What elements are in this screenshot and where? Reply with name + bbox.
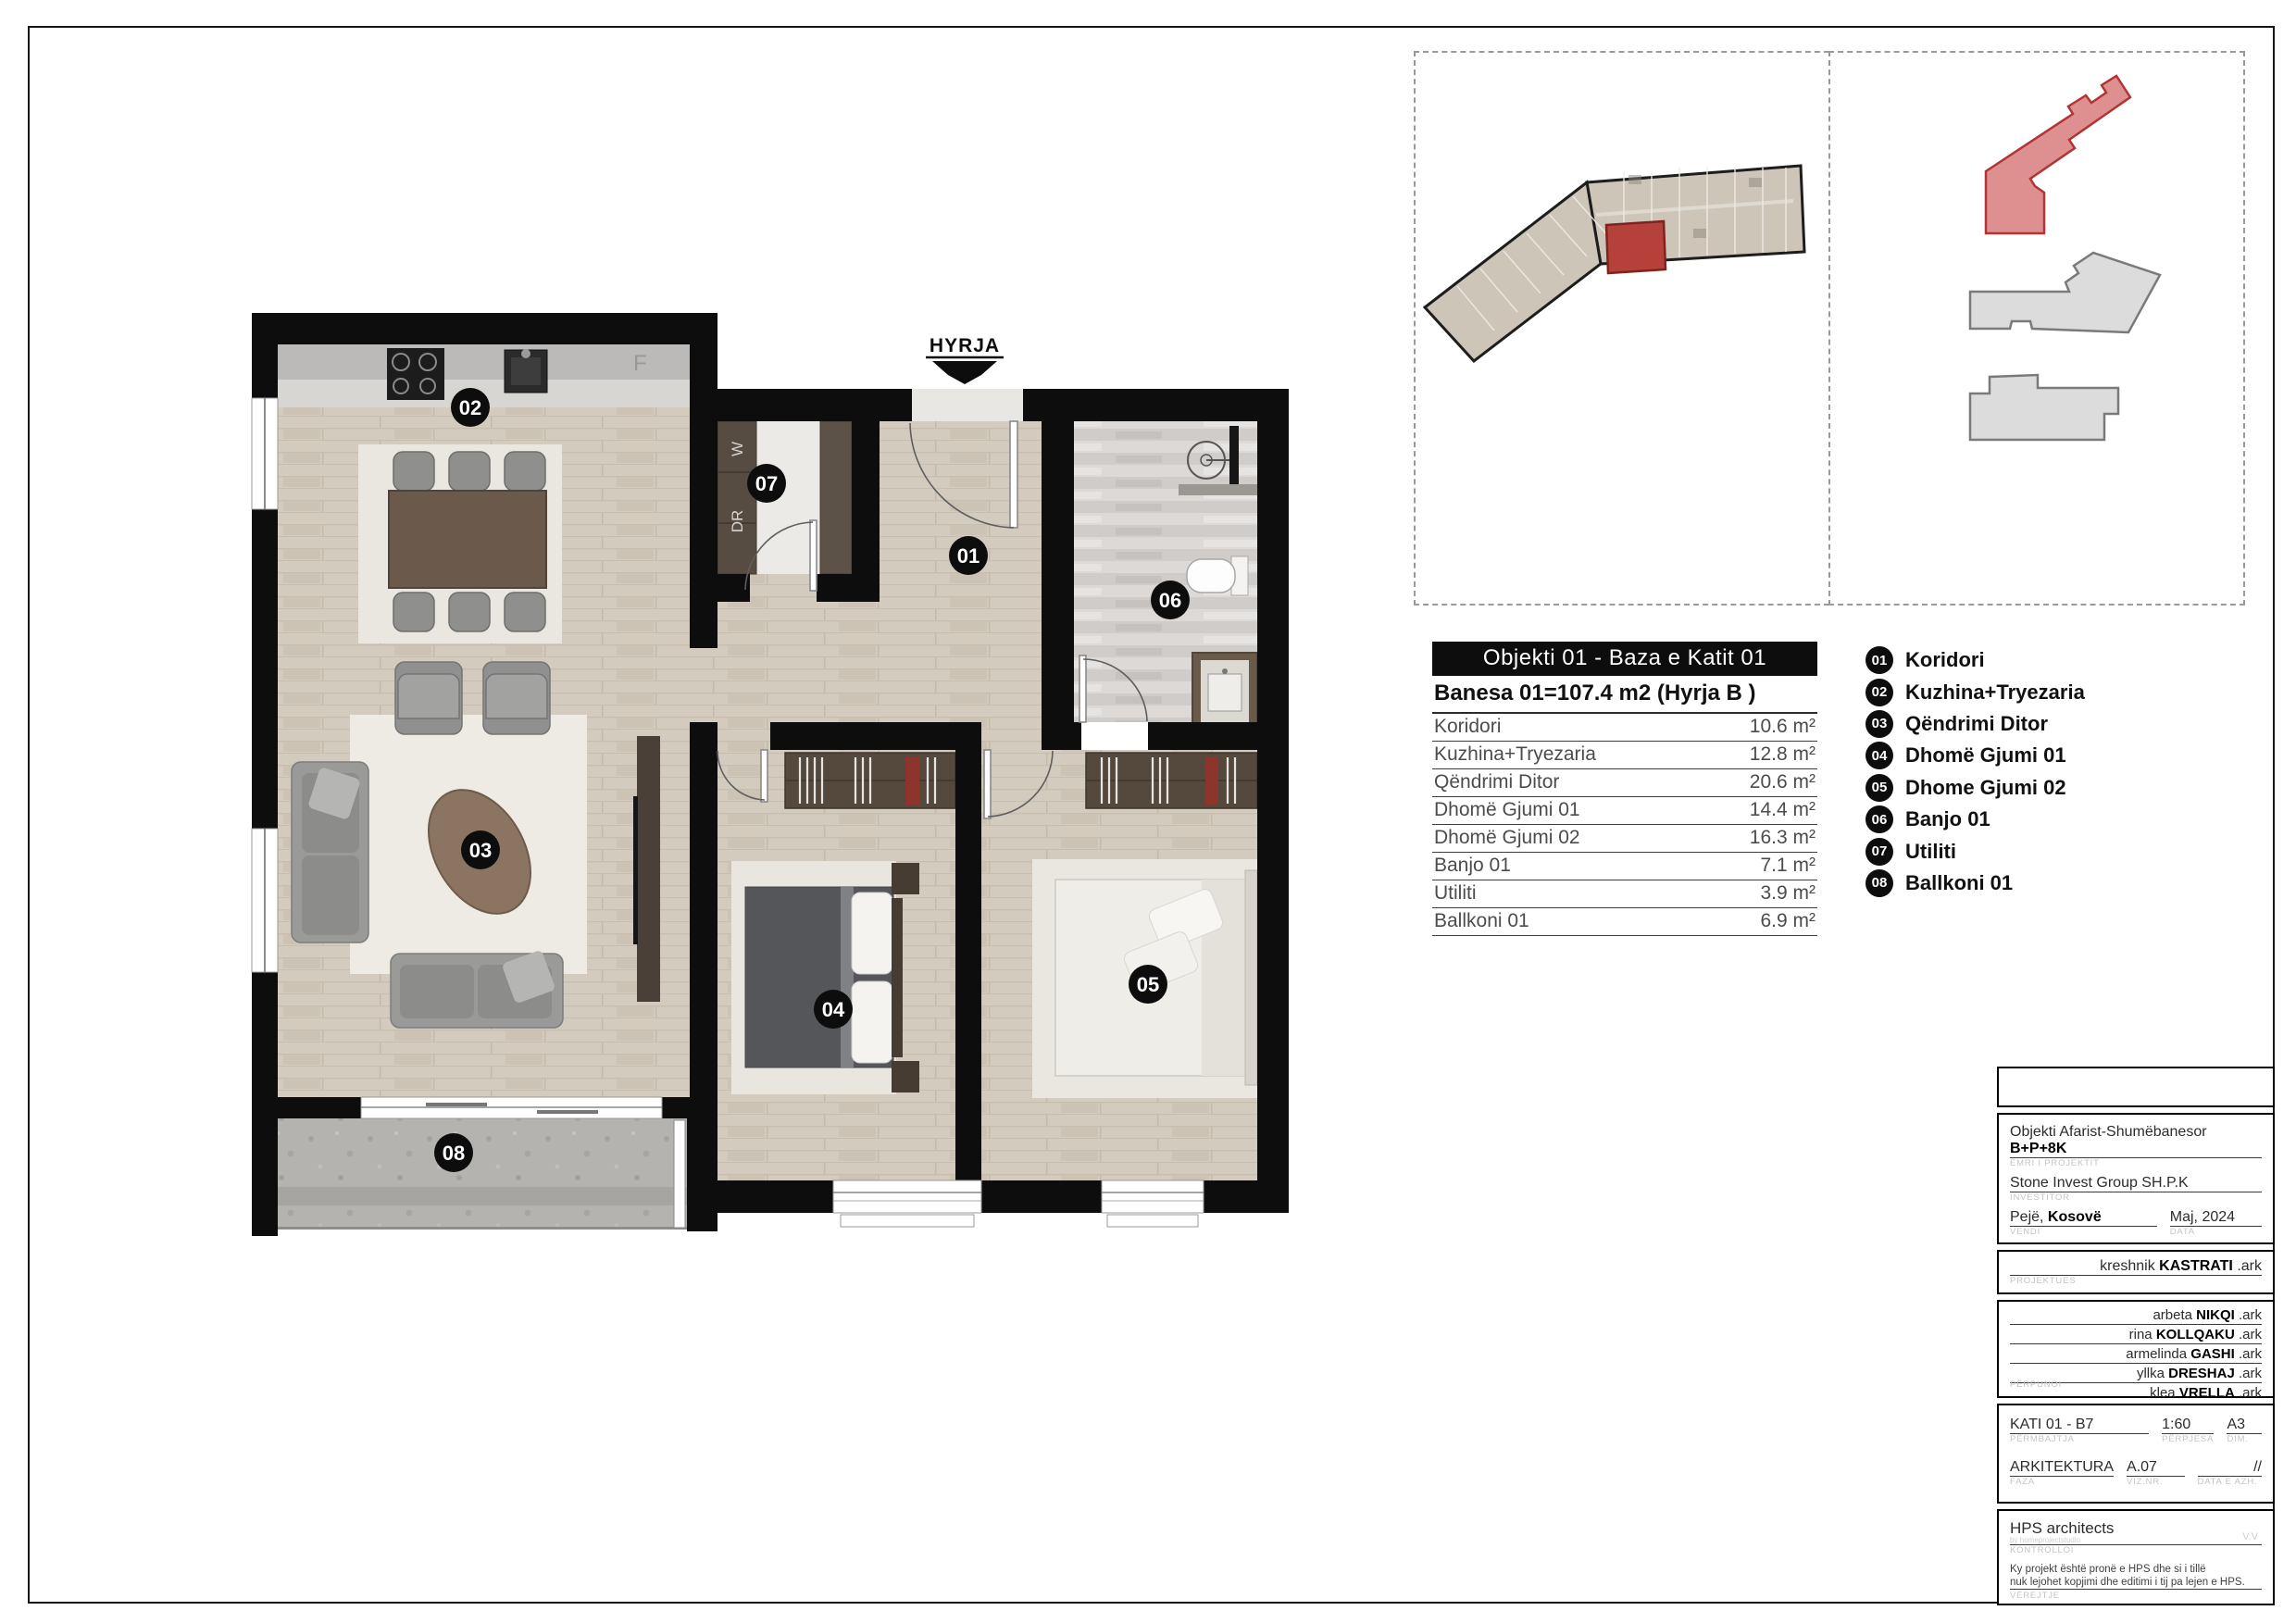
svg-text:04: 04	[822, 998, 845, 1021]
investor-field: Stone Invest Group SH.P.K INVESTITOR	[2010, 1175, 2262, 1203]
team-member: arbeta NIKQI .ark	[2010, 1307, 2262, 1325]
legend-item: 02Kuzhina+Tryezaria	[1865, 676, 2236, 707]
fridge-label: F	[633, 351, 647, 376]
legend-badge: 02	[1865, 679, 1893, 706]
title-block-project-box: Objekti Afarist-Shumëbanesor B+P+8K EMRI…	[1997, 1113, 2275, 1244]
investor-label: INVESTITOR	[2010, 1192, 2262, 1203]
phase-field: ARKITEKTURA FAZA	[2010, 1459, 2114, 1487]
entrance-arrow-icon	[932, 361, 997, 384]
legend-item: 01Koridori	[1865, 644, 2236, 676]
place-field: Pejë, Kosovë VENDI	[2010, 1209, 2157, 1237]
svg-text:07: 07	[755, 472, 778, 495]
table-row: Banjo 017.1 m²	[1432, 853, 1817, 880]
kitchen-counter	[278, 344, 690, 380]
window-bedroom2	[1102, 1180, 1204, 1227]
entry-threshold	[910, 389, 1023, 421]
date-field: Maj, 2024 DATA	[2170, 1209, 2262, 1237]
control-field: HPS architects by homeprojectstudio	[2010, 1519, 2262, 1545]
legend-item: 03Qëndrimi Ditor	[1865, 708, 2236, 740]
bed-1	[745, 863, 919, 1092]
title-block: Objekti Afarist-Shumëbanesor B+P+8K EMRI…	[1997, 1067, 2275, 1611]
note-field: Ky projekt është pronë e HPS dhe si i ti…	[2010, 1563, 2262, 1603]
balcony-floor	[278, 1118, 687, 1230]
revision-field: // DATA E AZH.	[2198, 1459, 2262, 1487]
table-row: Utiliti3.9 m²	[1432, 880, 1817, 908]
note-label: VËREJTJE	[2010, 1590, 2262, 1603]
utility-cabinet-right	[820, 421, 852, 574]
drawing-number-field: A.07 VIZ.NR.	[2127, 1459, 2185, 1487]
toilet	[1187, 556, 1248, 595]
badge-room-03: 03	[461, 830, 500, 869]
title-block-empty-box	[1997, 1067, 2275, 1107]
block-shape-gray-2	[1970, 375, 2118, 440]
block-shape-highlighted	[1986, 76, 2130, 233]
window-left-1	[252, 398, 278, 509]
table-row: Ballkoni 016.9 m²	[1432, 908, 1817, 936]
badge-room-08: 08	[434, 1133, 473, 1172]
svg-text:02: 02	[459, 396, 481, 419]
title-block-content-box: KATI 01 - B7 PËRMBAJTJA 1:60 PËRPJESA A3…	[1997, 1404, 2275, 1504]
legend-badge: 08	[1865, 869, 1893, 897]
legend-item: 06Banjo 01	[1865, 804, 2236, 835]
washer-label: W	[729, 442, 746, 456]
legend-badge: 06	[1865, 805, 1893, 833]
project-label: EMRI I PROJEKTIT	[2010, 1158, 2262, 1168]
svg-text:06: 06	[1159, 589, 1181, 612]
badge-room-07: 07	[747, 464, 786, 503]
date-label: DATA	[2170, 1227, 2262, 1237]
scale-field: 1:60 PËRPJESA	[2162, 1417, 2214, 1444]
legend-item: 07Utiliti	[1865, 835, 2236, 867]
area-table-title: Objekti 01 - Baza e Katit 01	[1432, 642, 1817, 676]
entrance-label: HYRJA	[930, 335, 1000, 356]
wardrobe-1	[785, 753, 955, 808]
svg-text:01: 01	[957, 544, 980, 568]
keyplan-mini-plan	[1416, 53, 1825, 600]
control-subtext: by homeprojectstudio	[2010, 1536, 2262, 1544]
control-extra: V.V	[2242, 1531, 2258, 1542]
dryer-label: DR	[729, 510, 746, 533]
table-row: Kuzhina+Tryezaria12.8 m²	[1432, 742, 1817, 769]
window-left-2	[252, 829, 278, 972]
wardrobe-2	[1086, 753, 1257, 808]
badge-room-04: 04	[814, 990, 853, 1029]
svg-text:05: 05	[1137, 973, 1159, 996]
faucet	[521, 349, 530, 358]
title-block-designer-box: kreshnik KASTRATI .ark PROJEKTUES	[1997, 1250, 2275, 1294]
room-legend: 01Koridori 02Kuzhina+Tryezaria 03Qëndrim…	[1865, 644, 2236, 899]
place-label: VENDI	[2010, 1227, 2157, 1237]
badge-room-06: 06	[1151, 581, 1190, 619]
project-field: Objekti Afarist-Shumëbanesor B+P+8K EMRI…	[2010, 1124, 2262, 1168]
legend-item: 04Dhomë Gjumi 01	[1865, 740, 2236, 771]
title-block-control-box: HPS architects by homeprojectstudio V.V …	[1997, 1509, 2275, 1605]
size-field: A3 DIM.	[2227, 1417, 2262, 1444]
badge-room-02: 02	[451, 388, 490, 427]
block-shapes-panel	[1828, 51, 2245, 606]
table-row: Koridori10.6 m²	[1432, 714, 1817, 742]
block-shapes	[1830, 53, 2240, 600]
legend-badge: 01	[1865, 646, 1893, 674]
balcony-railing	[674, 1120, 685, 1228]
sofa-left	[292, 762, 368, 943]
badge-room-05: 05	[1129, 965, 1167, 1004]
sofa-bottom	[391, 950, 563, 1028]
legend-badge: 05	[1865, 774, 1893, 802]
badge-room-01: 01	[949, 536, 988, 575]
vanity	[1192, 653, 1257, 734]
svg-text:08: 08	[443, 1142, 465, 1165]
building-wing-left	[1425, 182, 1601, 361]
team-member: armelinda GASHI .ark	[2010, 1346, 2262, 1364]
table-row: Dhomë Gjumi 0114.4 m²	[1432, 797, 1817, 825]
designer-label: PROJEKTUES	[2010, 1276, 2262, 1286]
legend-badge: 04	[1865, 742, 1893, 769]
shower-bar	[1229, 426, 1239, 484]
drawing-sheet: F	[0, 0, 2296, 1623]
highlighted-unit	[1606, 221, 1666, 273]
floor-plan: F	[241, 296, 1315, 1250]
legend-item: 05Dhome Gjumi 02	[1865, 772, 2236, 804]
entrance-marker: HYRJA	[926, 335, 1004, 384]
table-row: Dhomë Gjumi 0216.3 m²	[1432, 825, 1817, 853]
table-row: Qëndrimi Ditor20.6 m²	[1432, 769, 1817, 797]
window-bedroom1	[833, 1180, 981, 1227]
legend-badge: 07	[1865, 838, 1893, 866]
tv-screen	[633, 796, 638, 944]
svg-text:03: 03	[469, 839, 492, 862]
balcony-band	[278, 1187, 687, 1205]
title-block-team-box: arbeta NIKQI .ark rina KOLLQAKU .ark arm…	[1997, 1300, 2275, 1398]
shower-ledge	[1179, 484, 1257, 495]
area-table-subtitle: Banesa 01=107.4 m2 (Hyrja B )	[1432, 676, 1817, 714]
block-shape-gray-1	[1970, 253, 2160, 332]
balcony-slider	[361, 1097, 662, 1118]
tv-unit	[637, 736, 660, 1002]
content-field: KATI 01 - B7 PËRMBAJTJA	[2010, 1417, 2149, 1444]
dining-table	[389, 491, 546, 588]
team-label: PËRPUNOI	[2010, 1380, 2062, 1390]
keyplan-panel	[1414, 51, 1829, 606]
legend-badge: 03	[1865, 710, 1893, 738]
balcony-edge	[278, 1227, 687, 1230]
area-table: Objekti 01 - Baza e Katit 01 Banesa 01=1…	[1432, 642, 1817, 936]
legend-item: 08Ballkoni 01	[1865, 868, 2236, 899]
team-member: rina KOLLQAKU .ark	[2010, 1327, 2262, 1344]
control-label: KONTROLLOI	[2010, 1545, 2262, 1555]
